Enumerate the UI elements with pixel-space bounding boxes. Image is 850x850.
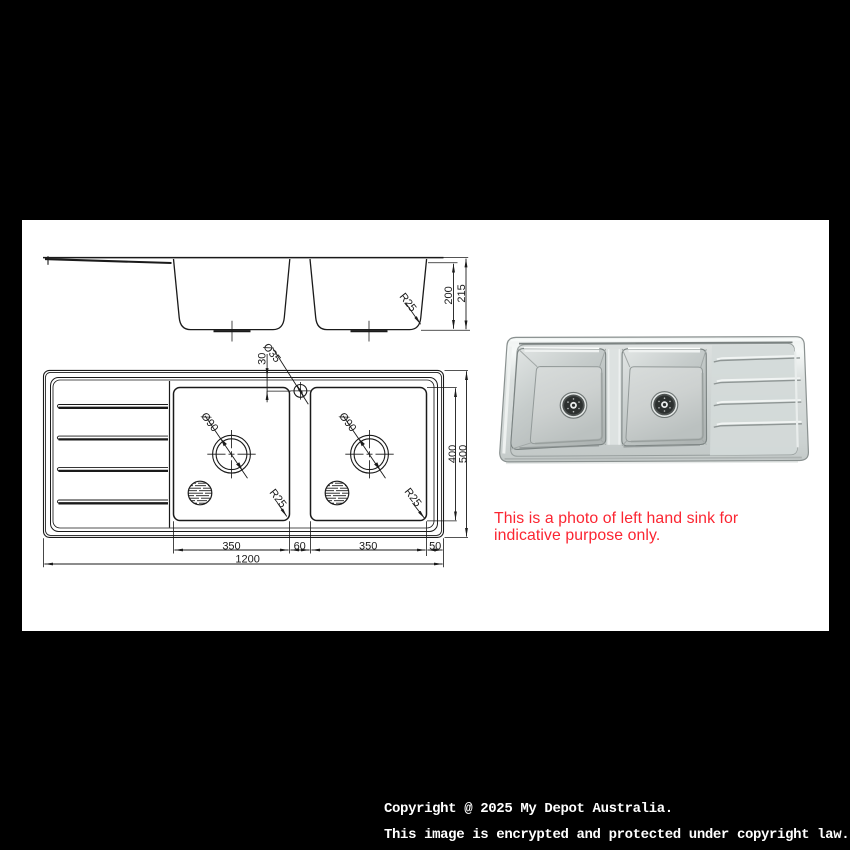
svg-text:50: 50 [429,541,441,553]
svg-text:500: 500 [458,445,470,463]
svg-text:200: 200 [443,286,455,304]
svg-text:60: 60 [294,541,306,553]
svg-text:30: 30 [257,353,269,365]
svg-text:350: 350 [359,541,377,553]
svg-text:215: 215 [456,284,468,302]
svg-text:350: 350 [222,541,240,553]
svg-text:1200: 1200 [235,554,259,566]
